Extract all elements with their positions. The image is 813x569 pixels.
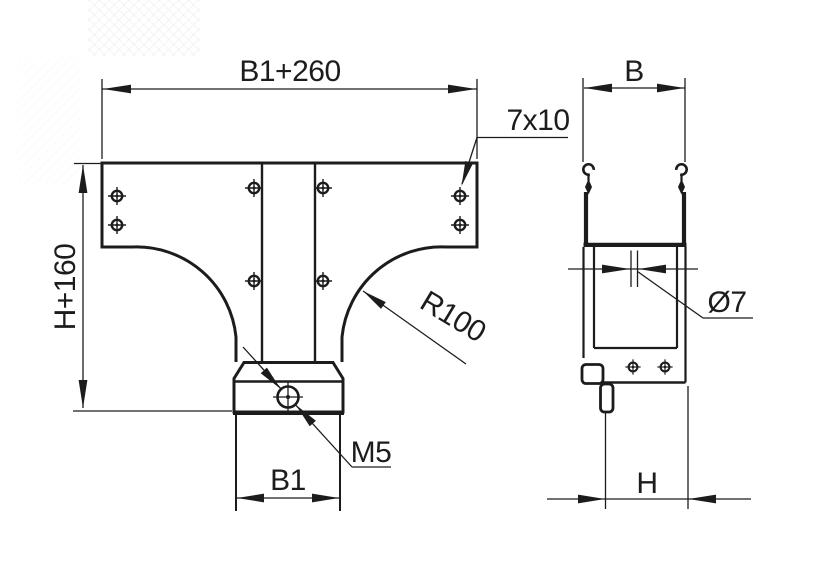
arrowhead bbox=[79, 380, 88, 408]
label-height-bottom: H bbox=[636, 467, 657, 500]
callout-r100: R100 bbox=[363, 285, 491, 364]
mounting-hole bbox=[245, 272, 263, 290]
arrowhead bbox=[602, 265, 630, 274]
mounting-hole bbox=[451, 187, 469, 205]
arrowhead bbox=[462, 161, 474, 186]
dim-h: H bbox=[547, 386, 751, 509]
mounting-hole bbox=[108, 187, 126, 205]
arrowhead bbox=[296, 405, 316, 426]
callout-m5: M5 bbox=[243, 347, 391, 469]
label-width-top: B1+260 bbox=[239, 55, 340, 88]
mounting-hole bbox=[108, 216, 126, 234]
arrowhead bbox=[237, 494, 264, 503]
watermark bbox=[18, 0, 200, 183]
dim-h-plus-160: H+160 bbox=[49, 164, 232, 412]
arrowhead bbox=[578, 495, 605, 504]
mounting-hole bbox=[314, 272, 332, 290]
fillet-left bbox=[133, 247, 236, 362]
watermark-patch bbox=[18, 58, 80, 183]
callout-dia7: Ø7 bbox=[568, 251, 753, 320]
label-hole-diameter: Ø7 bbox=[707, 286, 746, 319]
plate-outline bbox=[102, 163, 477, 247]
arrowhead bbox=[312, 494, 339, 503]
dim-b: B bbox=[583, 55, 685, 162]
leader-line bbox=[638, 272, 704, 319]
dim-b1-plus-260: B1+260 bbox=[102, 55, 477, 159]
lip-curl-left bbox=[583, 164, 593, 174]
side-view: B Ø7 H bbox=[547, 55, 753, 509]
arrowhead bbox=[261, 368, 281, 389]
watermark-patch bbox=[88, 0, 200, 56]
arrowhead bbox=[585, 84, 613, 93]
arrowhead bbox=[448, 85, 476, 94]
drawing-canvas: B1+260 H+160 B1 7x10 bbox=[0, 0, 813, 569]
mounting-hole bbox=[451, 216, 469, 234]
arrowhead bbox=[363, 291, 386, 309]
clip-hook bbox=[582, 365, 603, 384]
label-radius: R100 bbox=[415, 285, 492, 349]
side-hole bbox=[657, 359, 672, 374]
side-hole bbox=[625, 359, 640, 374]
arrowhead bbox=[103, 85, 131, 94]
front-view: B1+260 H+160 B1 7x10 bbox=[49, 55, 570, 511]
technical-drawing: B1+260 H+160 B1 7x10 bbox=[0, 0, 813, 569]
label-height: H+160 bbox=[49, 244, 82, 331]
clip-tab bbox=[601, 384, 614, 412]
label-thread: M5 bbox=[351, 436, 392, 469]
arrowhead bbox=[639, 265, 667, 274]
lip-curl-right bbox=[676, 164, 686, 174]
label-slot: 7x10 bbox=[506, 104, 569, 137]
label-width: B bbox=[624, 55, 644, 88]
label-width-bottom: B1 bbox=[270, 464, 306, 497]
dim-b1: B1 bbox=[236, 464, 340, 502]
m5-center bbox=[286, 395, 290, 399]
arrowhead bbox=[657, 84, 685, 93]
mounting-hole bbox=[245, 179, 263, 197]
mounting-hole bbox=[314, 179, 332, 197]
arrowhead bbox=[689, 495, 717, 504]
